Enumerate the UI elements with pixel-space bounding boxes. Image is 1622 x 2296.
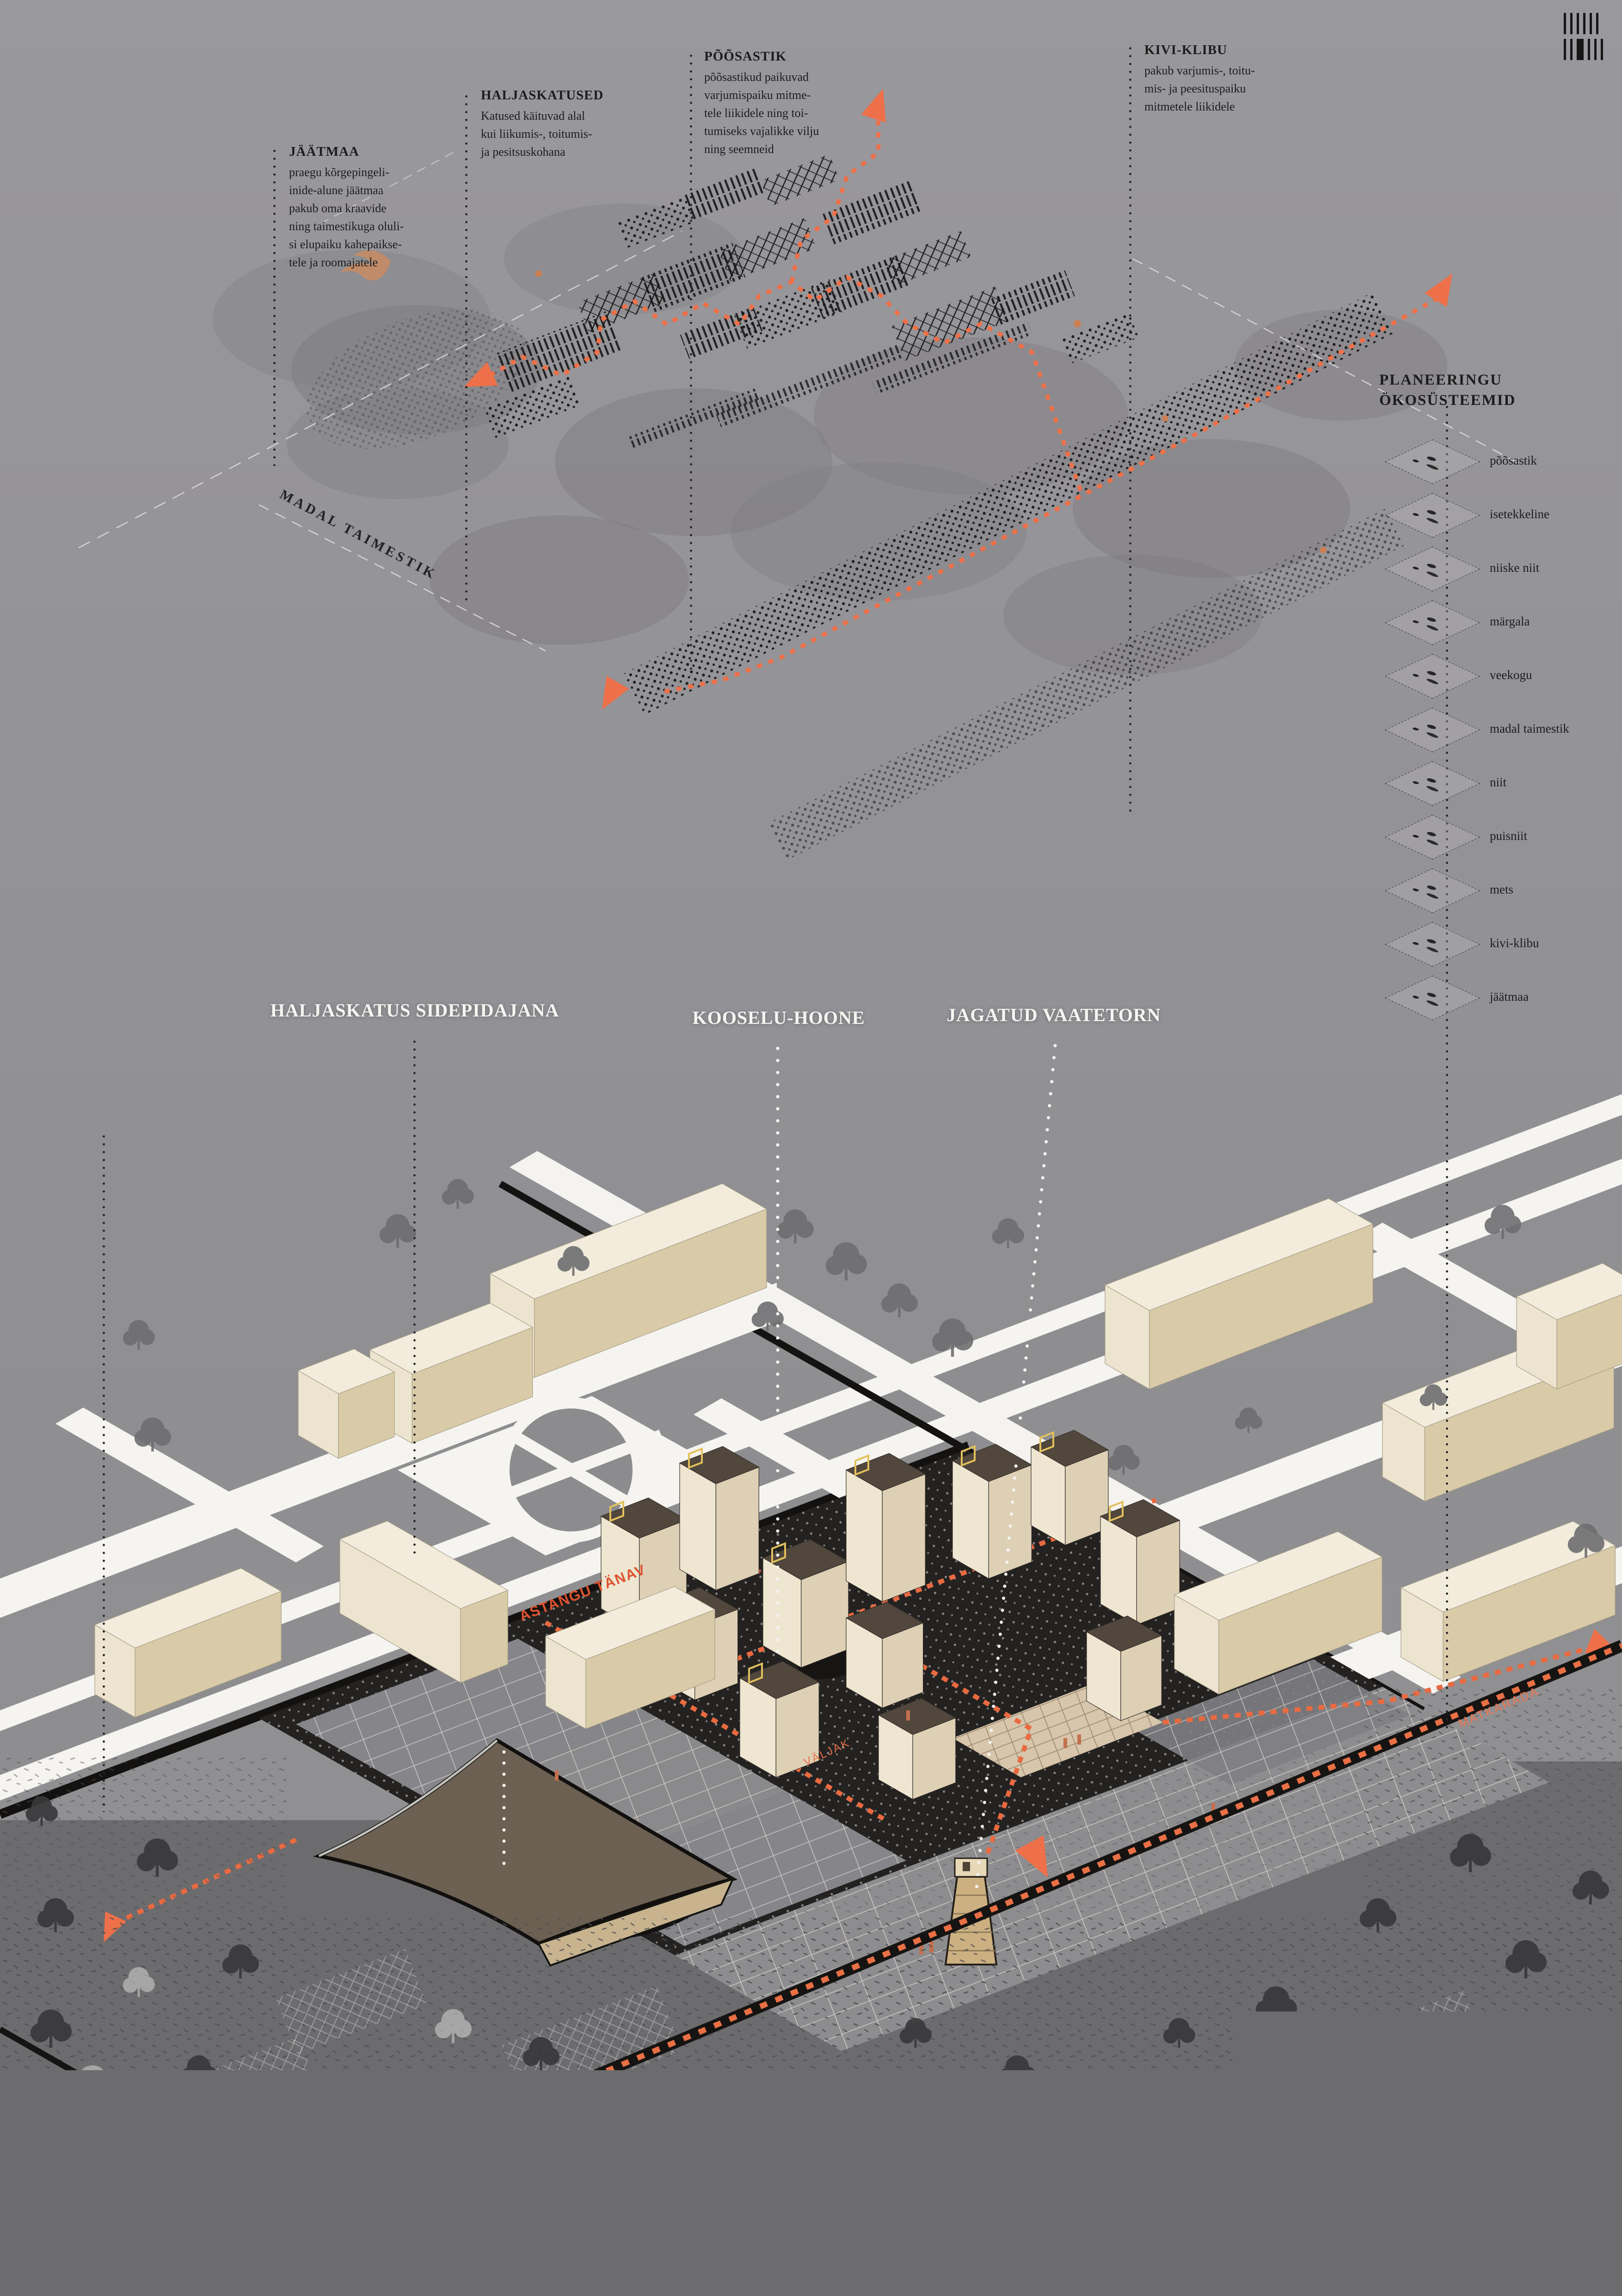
annotation-kivi-klibu: KIVI-KLIBU pakub varjumis-, toitu- mis- … bbox=[1144, 43, 1297, 116]
legend-item-label: isetekkeline bbox=[1490, 507, 1549, 521]
leader-line bbox=[413, 1038, 416, 1555]
leader-line bbox=[465, 92, 468, 606]
annotation-jaatmaa: JÄÄTMAA praegu kõrgepingeli- inide-alune… bbox=[289, 144, 442, 271]
annotation-body: pakub varjumis-, toitu- mis- ja peesitus… bbox=[1144, 61, 1297, 116]
legend-item-label: puisniit bbox=[1490, 829, 1527, 843]
annotation-haljaskatused: HALJASKATUSED Katused käituvad alal kui … bbox=[481, 88, 633, 161]
callout-haljaskatus: HALJASKATUS SIDEPIDAJANA bbox=[270, 999, 559, 1021]
annotation-body: põõsastikud paikuvad varjumispaiku mitme… bbox=[704, 68, 857, 158]
annotation-title: PÕÕSASTIK bbox=[704, 49, 857, 64]
legend-item-label: madal taimestik bbox=[1490, 722, 1569, 736]
legend-item-label: niiske niit bbox=[1490, 561, 1539, 575]
annotation-poosastik: PÕÕSASTIK põõsastikud paikuvad varjumisp… bbox=[704, 49, 857, 158]
legend-item-label: kivi-klibu bbox=[1490, 936, 1539, 950]
legend-item-label: mets bbox=[1490, 882, 1513, 897]
legend-axis-line bbox=[1445, 403, 1449, 1730]
legend-item-label: põõsastik bbox=[1490, 453, 1537, 468]
leader-line bbox=[102, 1133, 105, 1812]
masterplan-poster: JÄÄTMAA praegu kõrgepingeli- inide-alune… bbox=[0, 0, 1622, 2296]
legend-item-label: jäätmaa bbox=[1490, 990, 1529, 1004]
legend-title: PLANEERINGU ÖKOSÜSTEEMID bbox=[1379, 370, 1516, 410]
annotation-title: JÄÄTMAA bbox=[289, 144, 442, 159]
leader-line bbox=[273, 147, 276, 466]
legend-item-label: märgala bbox=[1490, 614, 1530, 629]
site-plan-illustration bbox=[0, 0, 1622, 2296]
leader-line bbox=[689, 52, 693, 676]
callout-kooselu: KOOSELU-HOONE bbox=[692, 1007, 865, 1029]
annotation-title: KIVI-KLIBU bbox=[1144, 43, 1297, 58]
annotation-body: praegu kõrgepingeli- inide-alune jäätmaa… bbox=[289, 163, 442, 271]
legend-item-label: veekogu bbox=[1490, 668, 1532, 682]
leader-line bbox=[1129, 44, 1132, 812]
annotation-title: HALJASKATUSED bbox=[481, 88, 633, 103]
callout-vaatetorn: JAGATUD VAATETORN bbox=[946, 1004, 1161, 1026]
annotation-body: Katused käituvad alal kui liikumis-, toi… bbox=[481, 107, 633, 161]
legend-item-label: niit bbox=[1490, 775, 1506, 790]
studio-bar-logo bbox=[1564, 13, 1603, 65]
